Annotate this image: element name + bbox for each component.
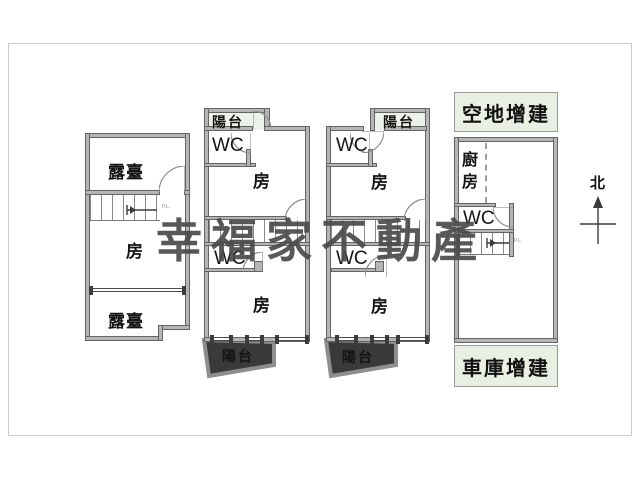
window-icon [397,337,428,341]
label-balcony-top: 陽台 [212,112,244,132]
wall [85,133,190,138]
north-arrow-icon [580,194,616,246]
label-balcony-bottom: 陽台 [222,346,254,366]
wall [553,137,558,343]
label-kitchen: 廚房 [462,150,482,194]
door-arc-icon [493,207,513,227]
wall [85,133,90,341]
wall [85,190,160,195]
label-terrace-top: 露臺 [108,158,144,183]
wall [326,126,364,131]
label-wc-upper: WC [336,135,368,157]
wall [454,137,558,142]
label-balcony-bottom: 陽台 [342,347,374,367]
window-icon [90,288,185,292]
door-arc-icon [253,111,271,129]
stairs-arrow-icon [126,204,160,216]
agency-watermark: 幸福家不動產 [156,215,486,267]
window-icon [371,337,388,341]
window-icon [276,337,308,341]
wall [158,325,163,341]
stairs-arrow-icon [486,237,512,249]
kitchen-partition [485,143,487,203]
wall [454,338,558,343]
window-icon [336,337,357,341]
wall [85,336,163,341]
label-room-upper: 房 [253,167,271,192]
north-label: 北 [590,172,605,193]
wall [454,203,496,207]
stairs-note: P.L. [162,204,170,210]
label-room: 房 [126,237,144,262]
wall [370,108,375,131]
window-icon [211,337,232,341]
door-arc-icon [159,166,185,192]
label-room-lower: 房 [253,291,271,316]
label-room-lower: 房 [371,292,389,317]
label-room-upper: 房 [371,168,389,193]
label-terrace-bottom: 露臺 [108,307,144,332]
floor-plan-canvas: P.L. 露臺 房 露臺 陽台 WC 房 WC 房 陽台 [0,0,640,480]
label-wc-upper: WC [212,135,244,157]
stairs-note: P.L. [514,238,522,244]
label-balcony-top: 陽台 [383,112,415,132]
annex-garage: 車庫增建 [454,345,558,387]
annex-open-land: 空地增建 [454,92,558,132]
window-icon [246,337,263,341]
